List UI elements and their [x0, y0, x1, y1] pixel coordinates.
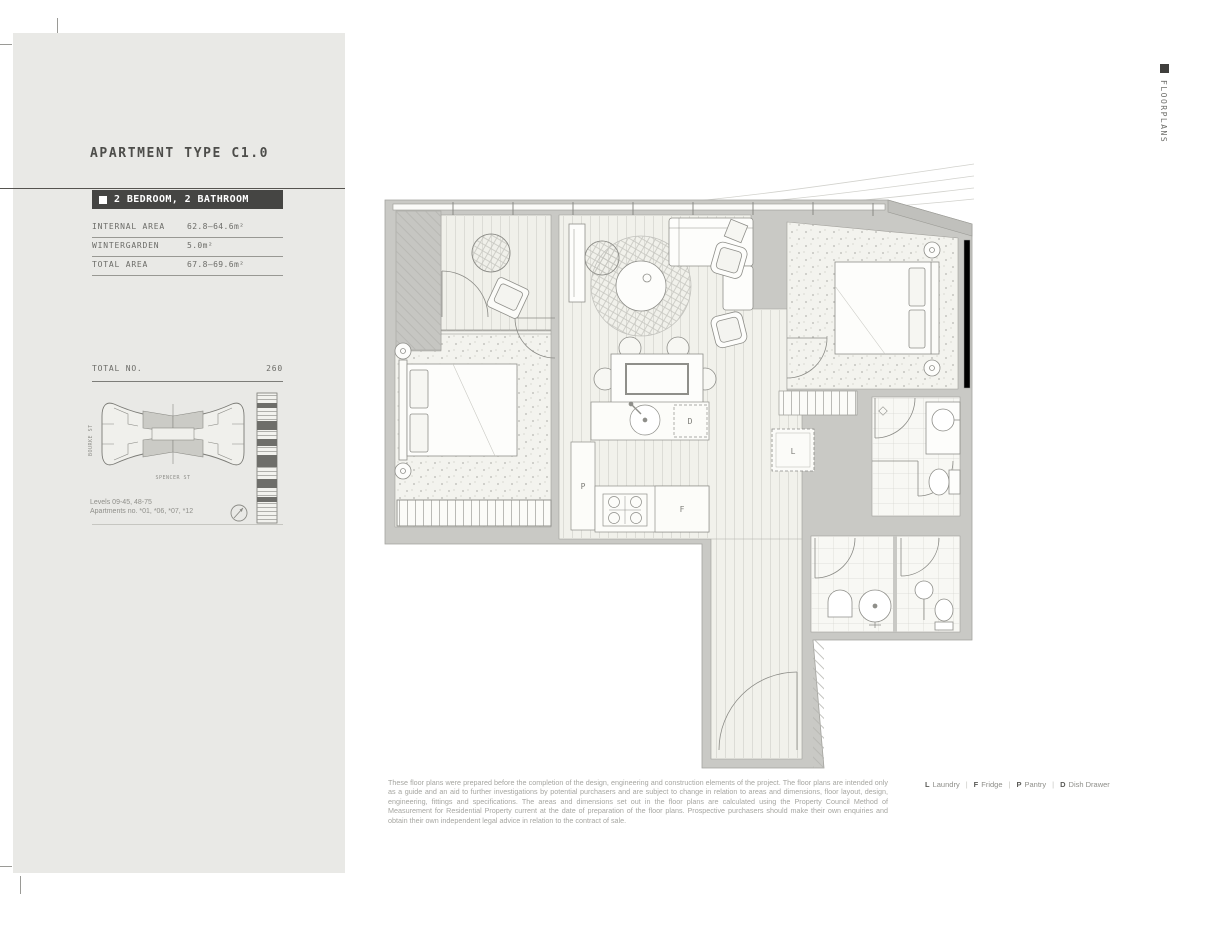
legend-separator: | — [966, 780, 968, 789]
pantry-label: P — [581, 482, 586, 491]
page-title: APARTMENT TYPE C1.0 — [90, 146, 269, 161]
disclaimer-text: These floor plans were prepared before t… — [388, 778, 888, 825]
legend-label: Fridge — [981, 780, 1002, 789]
legend-label: Pantry — [1024, 780, 1046, 789]
dish-drawer-label: D — [688, 417, 693, 426]
key-plan: BOURKE ST SPENCER ST — [84, 394, 254, 496]
laundry-label: L — [791, 447, 796, 456]
legend-key: F — [974, 780, 979, 789]
crop-mark — [20, 876, 21, 894]
margin-square-icon — [1160, 64, 1169, 73]
hall-robe — [779, 391, 857, 415]
levels-note-block: Levels 09-45, 48-75 Apartments no. *01, … — [90, 498, 193, 516]
legend-key: L — [925, 780, 930, 789]
floor-plan: D P F L — [383, 158, 975, 780]
section-divider — [92, 524, 283, 525]
wintergarden — [441, 215, 551, 331]
total-label: TOTAL NO. — [92, 364, 143, 373]
area-table: INTERNAL AREA 62.8–64.6m² WINTERGARDEN 5… — [92, 219, 283, 276]
total-value: 260 — [266, 364, 283, 373]
street-label-bottom: SPENCER ST — [155, 475, 190, 481]
street-label-left: BOURKE ST — [88, 424, 94, 456]
fridge-label: F — [680, 505, 685, 514]
row-label: TOTAL AREA — [92, 260, 187, 269]
plan-legend: L Laundry | F Fridge | P Pantry | D Dish… — [925, 780, 1110, 789]
levels-note: Levels 09-45, 48-75 — [90, 498, 193, 507]
legend-label: Laundry — [933, 780, 960, 789]
header-divider — [0, 188, 345, 189]
legend-key: P — [1016, 780, 1021, 789]
legend-label: Dish Drawer — [1069, 780, 1110, 789]
margin-tab-floorplans: FLOORPLANS — [1159, 80, 1168, 143]
total-number-row: TOTAL NO. 260 — [92, 364, 283, 382]
badge-label: 2 BEDROOM, 2 BATHROOM — [114, 194, 249, 205]
legend-separator: | — [1009, 780, 1011, 789]
badge-square-icon — [99, 196, 107, 204]
row-value: 62.8–64.6m² — [187, 222, 244, 231]
row-label: WINTERGARDEN — [92, 241, 187, 250]
row-value: 5.0m² — [187, 241, 213, 250]
row-label: INTERNAL AREA — [92, 222, 187, 231]
table-row-wintergarden: WINTERGARDEN 5.0m² — [92, 238, 283, 257]
crop-mark — [0, 866, 12, 867]
legend-key: D — [1060, 780, 1065, 789]
apartment-type-badge: 2 BEDROOM, 2 BATHROOM — [92, 190, 283, 209]
tower-elevation — [254, 391, 282, 525]
table-row-internal-area: INTERNAL AREA 62.8–64.6m² — [92, 219, 283, 238]
north-arrow-icon — [228, 502, 250, 524]
laundry-cupboard: L — [772, 429, 814, 471]
legend-separator: | — [1052, 780, 1054, 789]
apartments-note: Apartments no. *01, *06, *07, *12 — [90, 507, 193, 516]
table-row-total-area: TOTAL AREA 67.8–69.6m² — [92, 257, 283, 276]
row-value: 67.8–69.6m² — [187, 260, 244, 269]
crop-mark — [0, 44, 12, 45]
